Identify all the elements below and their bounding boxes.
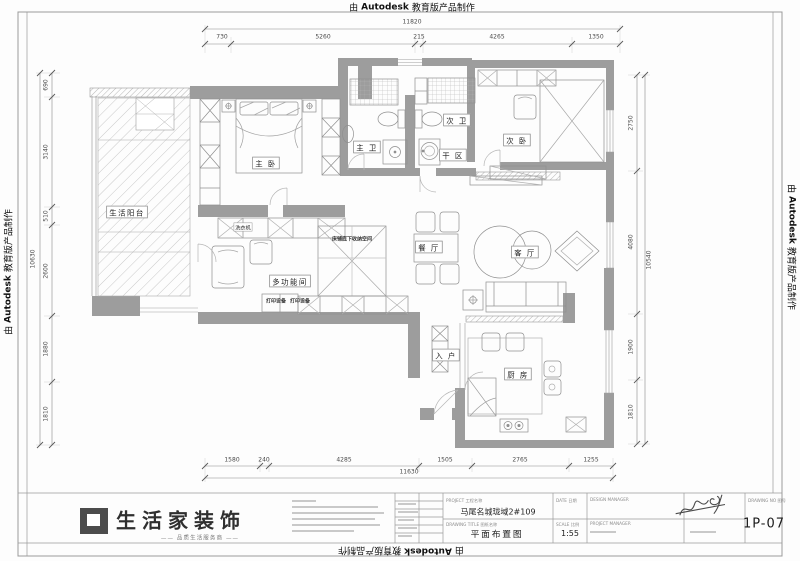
drawing-title: 平面布置图	[471, 526, 524, 539]
dim-top-seg: 4265	[489, 34, 504, 41]
dim-right-seg: 4080	[628, 234, 635, 249]
watermark-brand: Autodesk	[404, 546, 452, 556]
scale-caption: SCALE 比例	[556, 521, 579, 527]
signature	[674, 495, 726, 518]
balcony-glazing	[92, 96, 190, 296]
date-caption: DATE 日期	[556, 497, 577, 503]
design-manager-caption: DESIGN MANAGER	[590, 498, 629, 503]
room-label-living: 客 厅	[511, 246, 539, 259]
room-label-dry-area: 干 区	[439, 149, 467, 162]
dim-top-seg: 215	[413, 34, 424, 41]
room-label-balcony: 生活阳台	[106, 206, 147, 219]
annotation-printer-a: 打印设备	[266, 296, 286, 304]
dim-right-total: 10540	[646, 250, 653, 269]
room-label-master-bath: 主 卫	[353, 141, 381, 154]
watermark-brand: Autodesk	[3, 275, 13, 323]
watermark-suffix: 教育版产品制作	[338, 545, 401, 558]
room-label-entry: 入 户	[432, 349, 460, 362]
drawing-sheet: 由 Autodesk 教育版产品制作 由 Autodesk 教育版产品制作 由 …	[0, 0, 800, 561]
sheet-no: 1P-07	[743, 517, 785, 532]
dim-bottom-seg: 2765	[512, 457, 527, 464]
watermark-suffix: 教育版产品制作	[412, 1, 475, 14]
room-label-dining: 餐 厅	[415, 241, 443, 254]
furniture	[200, 70, 604, 432]
watermark-prefix: 由	[2, 326, 15, 335]
dim-bottom-seg: 1255	[583, 457, 598, 464]
company-logo-icon	[80, 508, 108, 534]
dim-top-seg: 1350	[588, 34, 603, 41]
annotation-under-bed-storage: 床铺底下收纳空间	[332, 234, 372, 242]
dim-left-seg: 1880	[43, 341, 50, 356]
autodesk-watermark-right: 由 Autodesk 教育版产品制作	[786, 184, 799, 310]
company-tagline: —— 品质生活服务商 ——	[161, 533, 239, 541]
dim-left-total: 10630	[30, 249, 37, 268]
dim-bottom-seg: 4285	[336, 457, 351, 464]
dim-bottom-total: 11630	[399, 469, 418, 476]
autodesk-watermark-bottom: 由 Autodesk 教育版产品制作	[338, 545, 464, 558]
dim-right-seg: 1900	[628, 339, 635, 354]
watermark-prefix: 由	[786, 184, 799, 193]
dim-left-seg: 690	[43, 79, 50, 90]
dim-left-seg: 3140	[43, 144, 50, 159]
room-label-second-bedroom: 次 卧	[503, 134, 531, 147]
dim-bottom-seg: 1580	[224, 457, 239, 464]
door-swings	[198, 150, 500, 414]
dim-right-seg: 1810	[628, 404, 635, 419]
project-name: 马尾名城珑域2#109	[460, 505, 535, 517]
dim-top-seg: 5260	[315, 34, 330, 41]
room-label-multi-room: 多功能间	[269, 275, 310, 288]
sheet-no-caption: DRAWING NO 图号	[748, 497, 786, 503]
autodesk-watermark-top: 由 Autodesk 教育版产品制作	[349, 1, 475, 14]
dim-left-seg: 2600	[43, 263, 50, 278]
dim-left-seg: 1810	[43, 406, 50, 421]
room-label-second-bath: 次 卫	[443, 114, 471, 127]
watermark-brand: Autodesk	[787, 196, 797, 244]
room-label-kitchen: 厨 房	[504, 368, 532, 381]
room-label-master-bedroom: 主 卧	[252, 157, 280, 170]
project-caption: PROJECT 工程名称	[446, 497, 482, 503]
watermark-suffix: 教育版产品制作	[786, 247, 799, 310]
annotation-washer: 洗衣机	[234, 223, 253, 232]
autodesk-watermark-left: 由 Autodesk 教育版产品制作	[2, 209, 15, 335]
dim-top-total: 11820	[402, 19, 421, 26]
project-manager-caption: PROJECT MANAGER	[590, 522, 631, 527]
company-name: 生活家装饰	[116, 505, 246, 534]
dim-top-seg: 730	[216, 34, 227, 41]
watermark-suffix: 教育版产品制作	[2, 209, 15, 272]
dim-left-seg: 510	[43, 210, 50, 221]
watermark-brand: Autodesk	[361, 2, 409, 12]
floor-plan-drawing	[0, 0, 800, 561]
dim-bottom-seg: 1505	[437, 457, 452, 464]
dim-right-seg: 2750	[628, 115, 635, 130]
watermark-prefix: 由	[455, 545, 464, 558]
dim-bottom-seg: 240	[258, 457, 269, 464]
annotation-printer-b: 打印设备	[290, 296, 310, 304]
watermark-prefix: 由	[349, 1, 358, 14]
scale-value: 1:55	[561, 530, 579, 539]
